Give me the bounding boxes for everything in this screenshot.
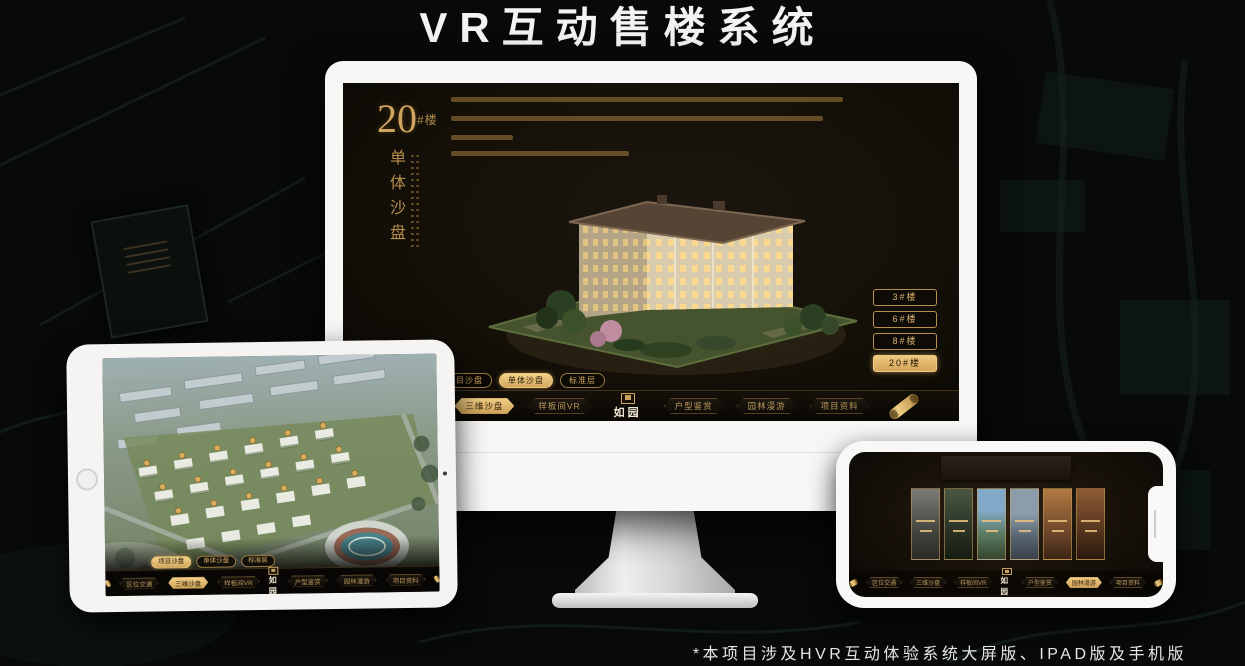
nav-item-project-info[interactable]: 项目资料 (386, 573, 426, 586)
scroll-menu-icon-right[interactable] (433, 575, 439, 583)
brand-logo[interactable]: 如园 (1001, 568, 1014, 597)
nav-item-showroom-vr[interactable]: 样板间VR (527, 398, 591, 414)
background-plaque (90, 204, 208, 338)
logo-seal-icon (1002, 568, 1012, 575)
phone-bottom-nav: 区位交通 三维沙盘 样板间VR 如园 户型鉴赏 园林漫游 项目资料 (849, 571, 1163, 594)
phone-notch (1148, 486, 1163, 562)
building-heading: 20#楼 (377, 99, 438, 139)
nav-item-3d-sandtable[interactable]: 三维沙盘 (910, 577, 946, 588)
footnote: *本项目涉及HVR互动体验系统大屏版、IPAD版及手机版 (693, 640, 1187, 664)
gallery-card-building[interactable] (1010, 488, 1039, 560)
tab-single-sandtable[interactable]: 单体沙盘 (499, 373, 553, 388)
nav-item-showroom-vr[interactable]: 样板间VR (954, 577, 992, 588)
tab-project-sandtable[interactable]: 项目沙盘 (151, 556, 191, 569)
phone-speaker-slit (1154, 510, 1156, 538)
poster-canvas: VR互动售楼系统 *本项目涉及HVR互动体验系统大屏版、IPAD版及手机版 20… (0, 0, 1245, 666)
nav-item-3d-sandtable[interactable]: 三维沙盘 (168, 576, 208, 589)
nav-item-garden-roam[interactable]: 园林漫游 (737, 398, 797, 414)
floor-button-6[interactable]: 6#楼 (873, 311, 937, 328)
logo-seal-icon (269, 566, 279, 574)
ipad-camera-dot (443, 471, 447, 475)
gallery-card-interior[interactable] (911, 488, 940, 560)
ipad-mockup: 项目沙盘 单体沙盘 标准层 区位交通 三维沙盘 样板间VR 如园 户型鉴赏 园林… (66, 339, 458, 612)
building-subtitle: 单体沙盘 (383, 149, 407, 249)
scene-gallery (911, 488, 1105, 560)
scroll-menu-icon-right[interactable] (1153, 578, 1163, 588)
building-unit: #楼 (417, 113, 438, 127)
gallery-card-lounge[interactable] (1076, 488, 1105, 560)
floor-button-20[interactable]: 20#楼 (873, 355, 937, 372)
brand-logo[interactable]: 如园 (605, 393, 651, 420)
nav-item-3d-sandtable[interactable]: 三维沙盘 (454, 398, 514, 414)
nav-item-showroom-vr[interactable]: 样板间VR (217, 576, 260, 589)
floor-button-3[interactable]: 3#楼 (873, 289, 937, 306)
tab-single-sandtable[interactable]: 单体沙盘 (196, 555, 236, 568)
nav-item-garden-roam[interactable]: 园林漫游 (1066, 577, 1102, 588)
nav-item-unit-plans[interactable]: 户型鉴赏 (1022, 577, 1058, 588)
scroll-menu-icon-left[interactable] (104, 579, 112, 587)
scroll-menu-icon[interactable] (887, 391, 921, 421)
nav-item-project-info[interactable]: 项目资料 (810, 398, 870, 414)
brand-logo[interactable]: 如园 (269, 566, 279, 596)
nav-item-project-info[interactable]: 项目资料 (1110, 577, 1146, 588)
nav-item-unit-plans[interactable]: 户型鉴赏 (664, 398, 724, 414)
phone-mockup: 区位交通 三维沙盘 样板间VR 如园 户型鉴赏 园林漫游 项目资料 (836, 441, 1176, 608)
gallery-card-autumn[interactable] (1043, 488, 1072, 560)
gallery-card-courtyard[interactable] (944, 488, 973, 560)
sandtable-3d-building-view[interactable] (461, 145, 875, 379)
ipad-home-button[interactable] (76, 468, 98, 490)
subtitle-english-micro-text (411, 155, 419, 247)
scroll-menu-icon-left[interactable] (849, 578, 859, 588)
nav-item-location-traffic[interactable]: 区位交通 (866, 577, 902, 588)
ipad-screen: 项目沙盘 单体沙盘 标准层 区位交通 三维沙盘 样板间VR 如园 户型鉴赏 园林… (102, 354, 439, 597)
tab-standard-floor[interactable]: 标准层 (560, 373, 605, 388)
nav-item-unit-plans[interactable]: 户型鉴赏 (288, 575, 328, 588)
ipad-bottom-nav: 区位交通 三维沙盘 样板间VR 如园 户型鉴赏 园林漫游 项目资料 (105, 566, 439, 597)
floor-button-8[interactable]: 8#楼 (873, 333, 937, 350)
logo-seal-icon (621, 393, 635, 404)
ipad-sub-tabs: 项目沙盘 单体沙盘 标准层 (151, 555, 275, 569)
page-title: VR互动售楼系统 (0, 0, 1245, 56)
gallery-card-garden-sky[interactable] (977, 488, 1006, 560)
nav-item-location-traffic[interactable]: 区位交通 (119, 577, 159, 590)
nav-item-garden-roam[interactable]: 园林漫游 (337, 574, 377, 587)
phone-screen: 区位交通 三维沙盘 样板间VR 如园 户型鉴赏 园林漫游 项目资料 (849, 452, 1163, 597)
entrance-gate-beam (941, 456, 1071, 480)
floor-selector: 3#楼 6#楼 8#楼 20#楼 (873, 289, 937, 372)
building-number: 20 (377, 96, 417, 141)
monitor-base (552, 593, 758, 608)
sandtable-sub-tabs: 项目沙盘 单体沙盘 标准层 (438, 373, 605, 388)
